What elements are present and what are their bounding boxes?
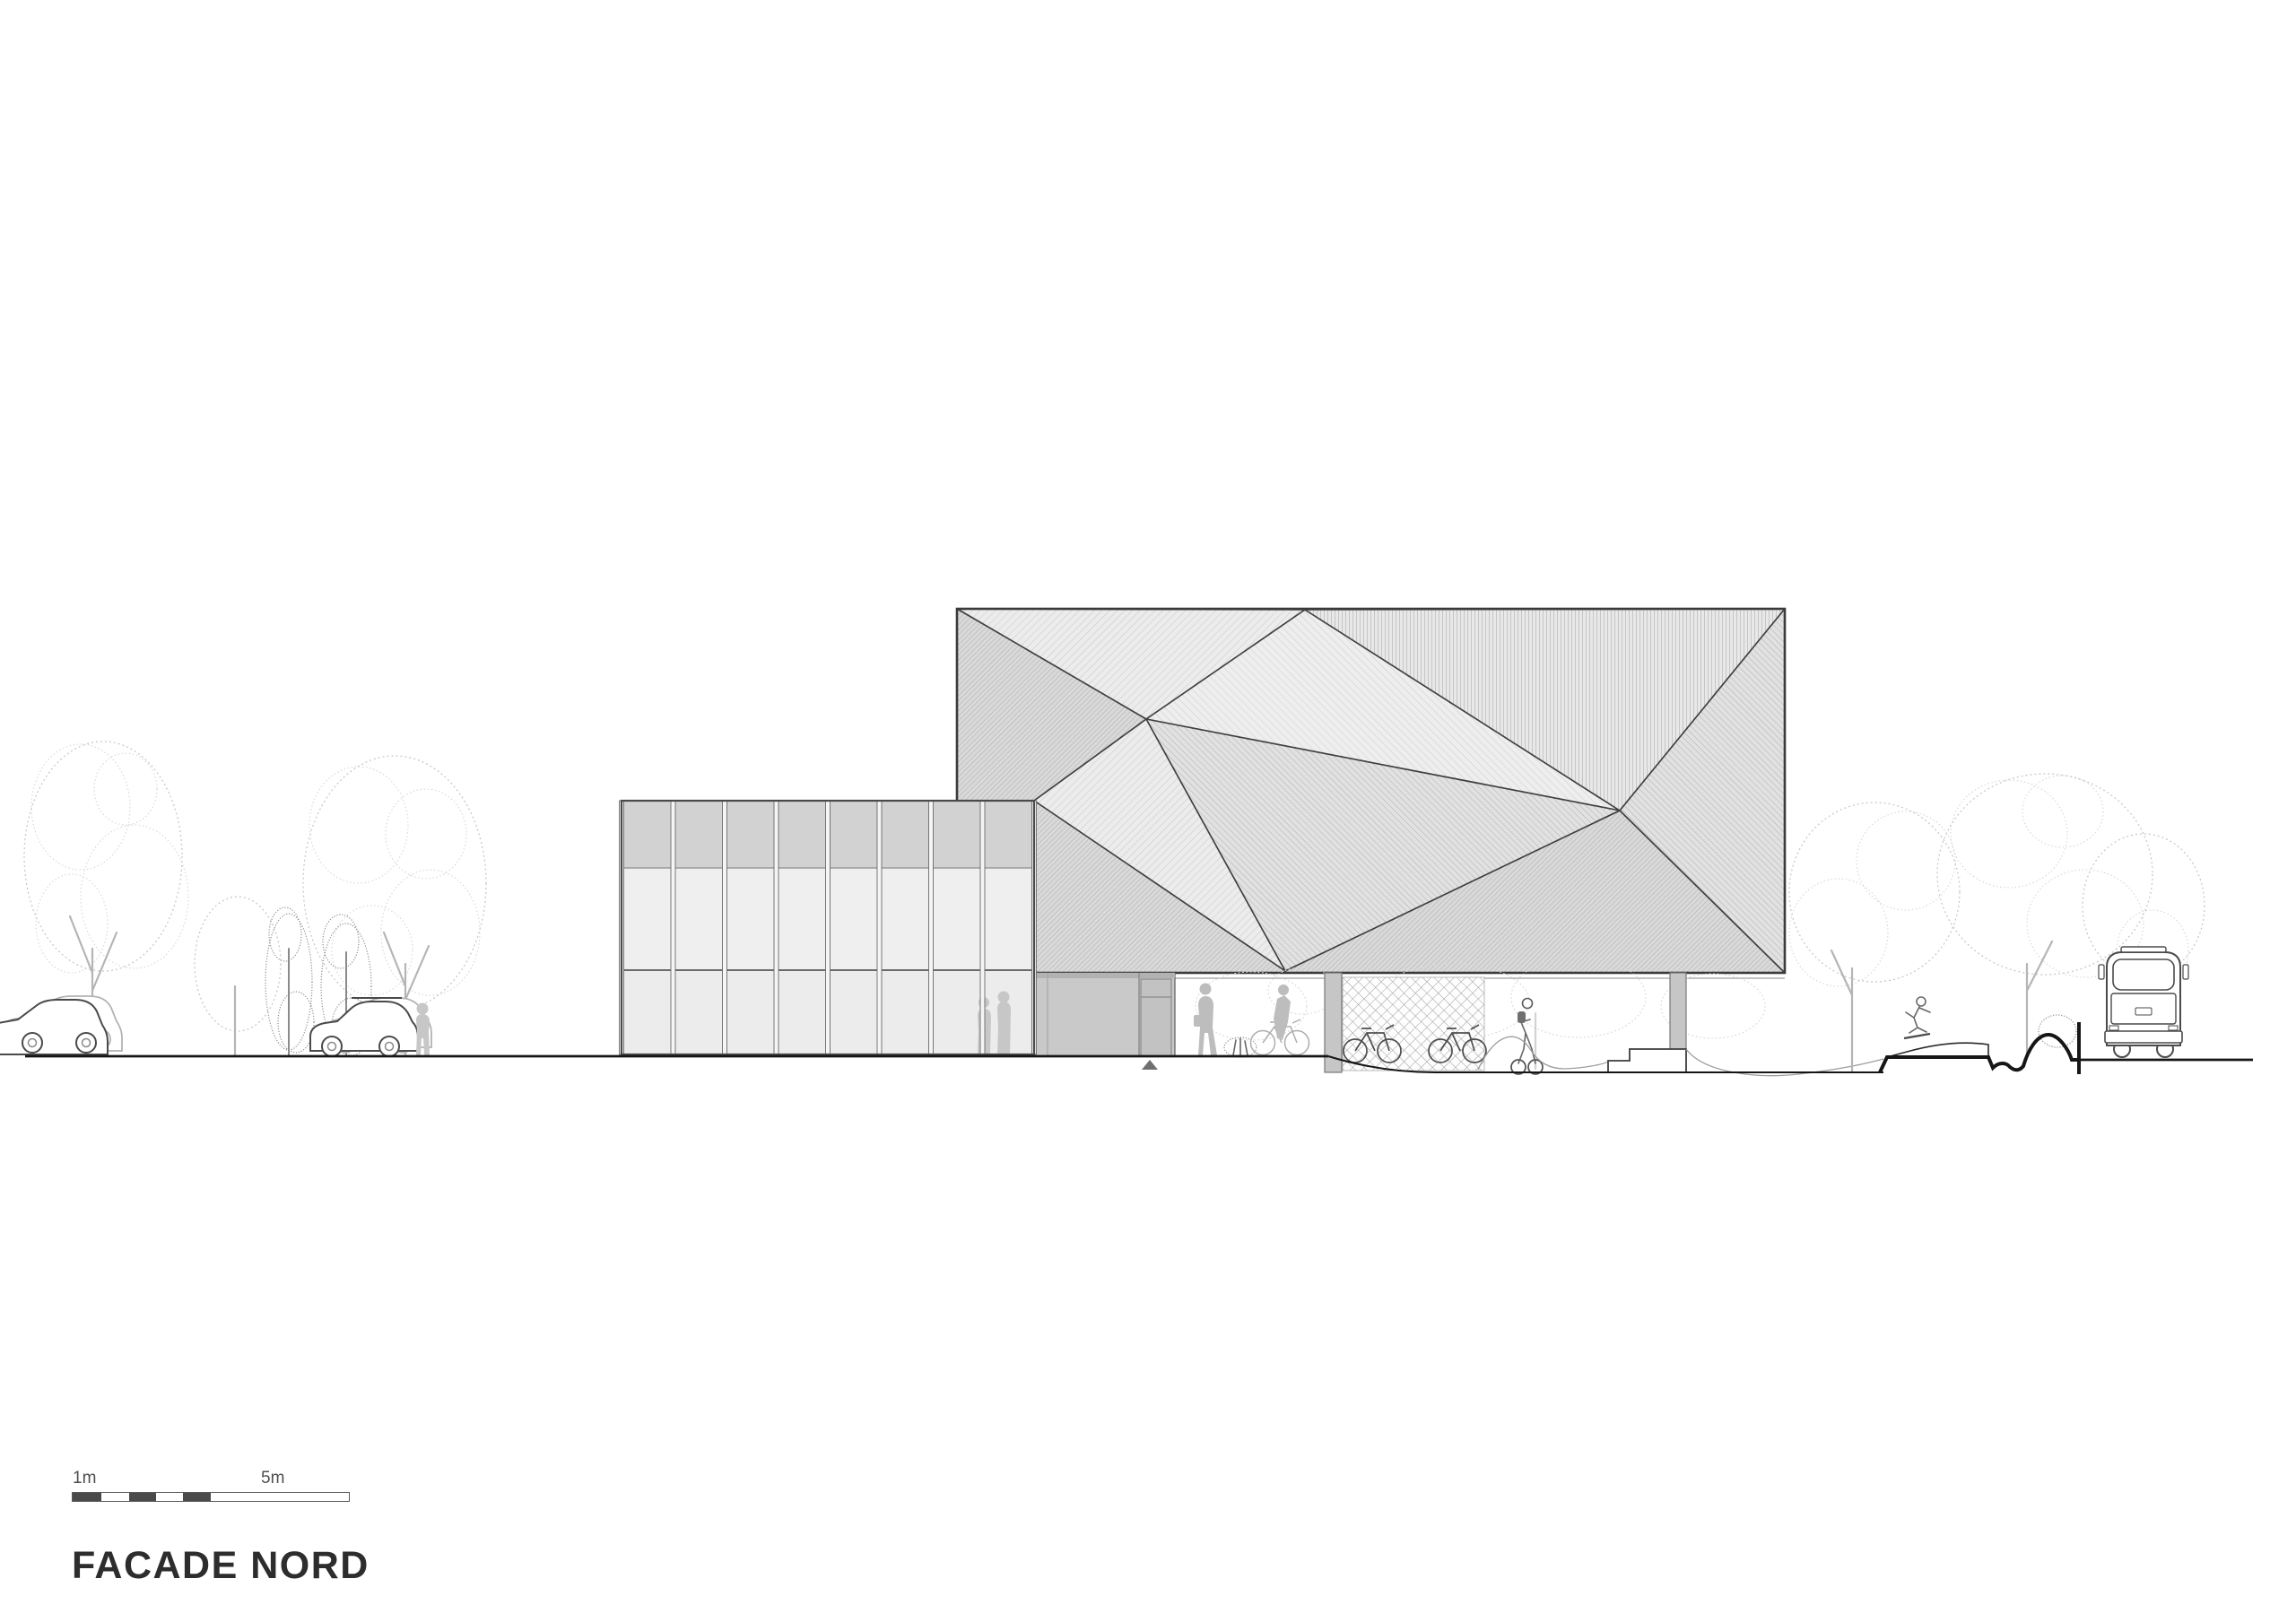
skatepark-section xyxy=(1887,997,1988,1057)
tree-canopy xyxy=(1937,774,2152,977)
pedestrian-passage xyxy=(1194,984,1217,1056)
scale-label-5m: 5m xyxy=(261,1469,284,1488)
entrance-volume xyxy=(1034,973,1175,1056)
elevation-drawing xyxy=(0,0,2296,1622)
faceted-volume xyxy=(957,609,1785,978)
bus-light xyxy=(2109,1026,2118,1030)
scale-segment xyxy=(129,1493,156,1501)
bike-fence xyxy=(1343,977,1484,1071)
skate-ramp xyxy=(1478,1037,1608,1070)
elevation-sheet: 1m 5m FACADE NORD xyxy=(0,0,2296,1622)
drawing-title: FACADE NORD xyxy=(72,1544,370,1588)
undercroft xyxy=(1034,957,1883,1076)
scale-segment xyxy=(73,1493,101,1501)
tree-canopy xyxy=(1789,802,1960,986)
scale-bar-labels: 1m 5m xyxy=(72,1469,350,1492)
scale-segment xyxy=(211,1493,349,1501)
shrub xyxy=(2039,1015,2076,1047)
entrance-marker-icon xyxy=(1142,1060,1158,1070)
entrance-door xyxy=(1141,979,1171,1056)
scale-segment xyxy=(156,1493,183,1501)
quarter-pipe xyxy=(1887,1043,1988,1057)
bus-light xyxy=(2169,1026,2178,1030)
suv xyxy=(310,998,418,1056)
bus-bumper xyxy=(2105,1031,2182,1043)
bus xyxy=(2099,947,2188,1057)
tree-trunk xyxy=(1831,950,1852,1071)
bus-roof-hatch xyxy=(2121,947,2166,952)
parked-cars-left xyxy=(0,996,122,1054)
parked-suvs xyxy=(310,998,431,1056)
scale-segment xyxy=(183,1493,211,1501)
car-hatchback xyxy=(0,1000,108,1054)
tree-canopy xyxy=(24,742,281,1031)
glazed-volume xyxy=(620,801,1037,1054)
tree-canopy xyxy=(303,756,486,1010)
bus-rear-window xyxy=(2113,959,2174,990)
skateboarder xyxy=(1904,997,1930,1038)
scale-bar-ruler xyxy=(72,1492,350,1502)
scale-label-1m: 1m xyxy=(73,1469,96,1488)
column xyxy=(1670,973,1686,1049)
bus-mirror xyxy=(2183,965,2188,979)
scale-segment xyxy=(101,1493,129,1501)
steps xyxy=(1608,1049,1686,1072)
scale-bar: 1m 5m xyxy=(72,1469,350,1502)
cyclist-passage xyxy=(1251,984,1309,1055)
bus-plate xyxy=(2135,1008,2152,1015)
bus-mirror xyxy=(2099,965,2104,979)
